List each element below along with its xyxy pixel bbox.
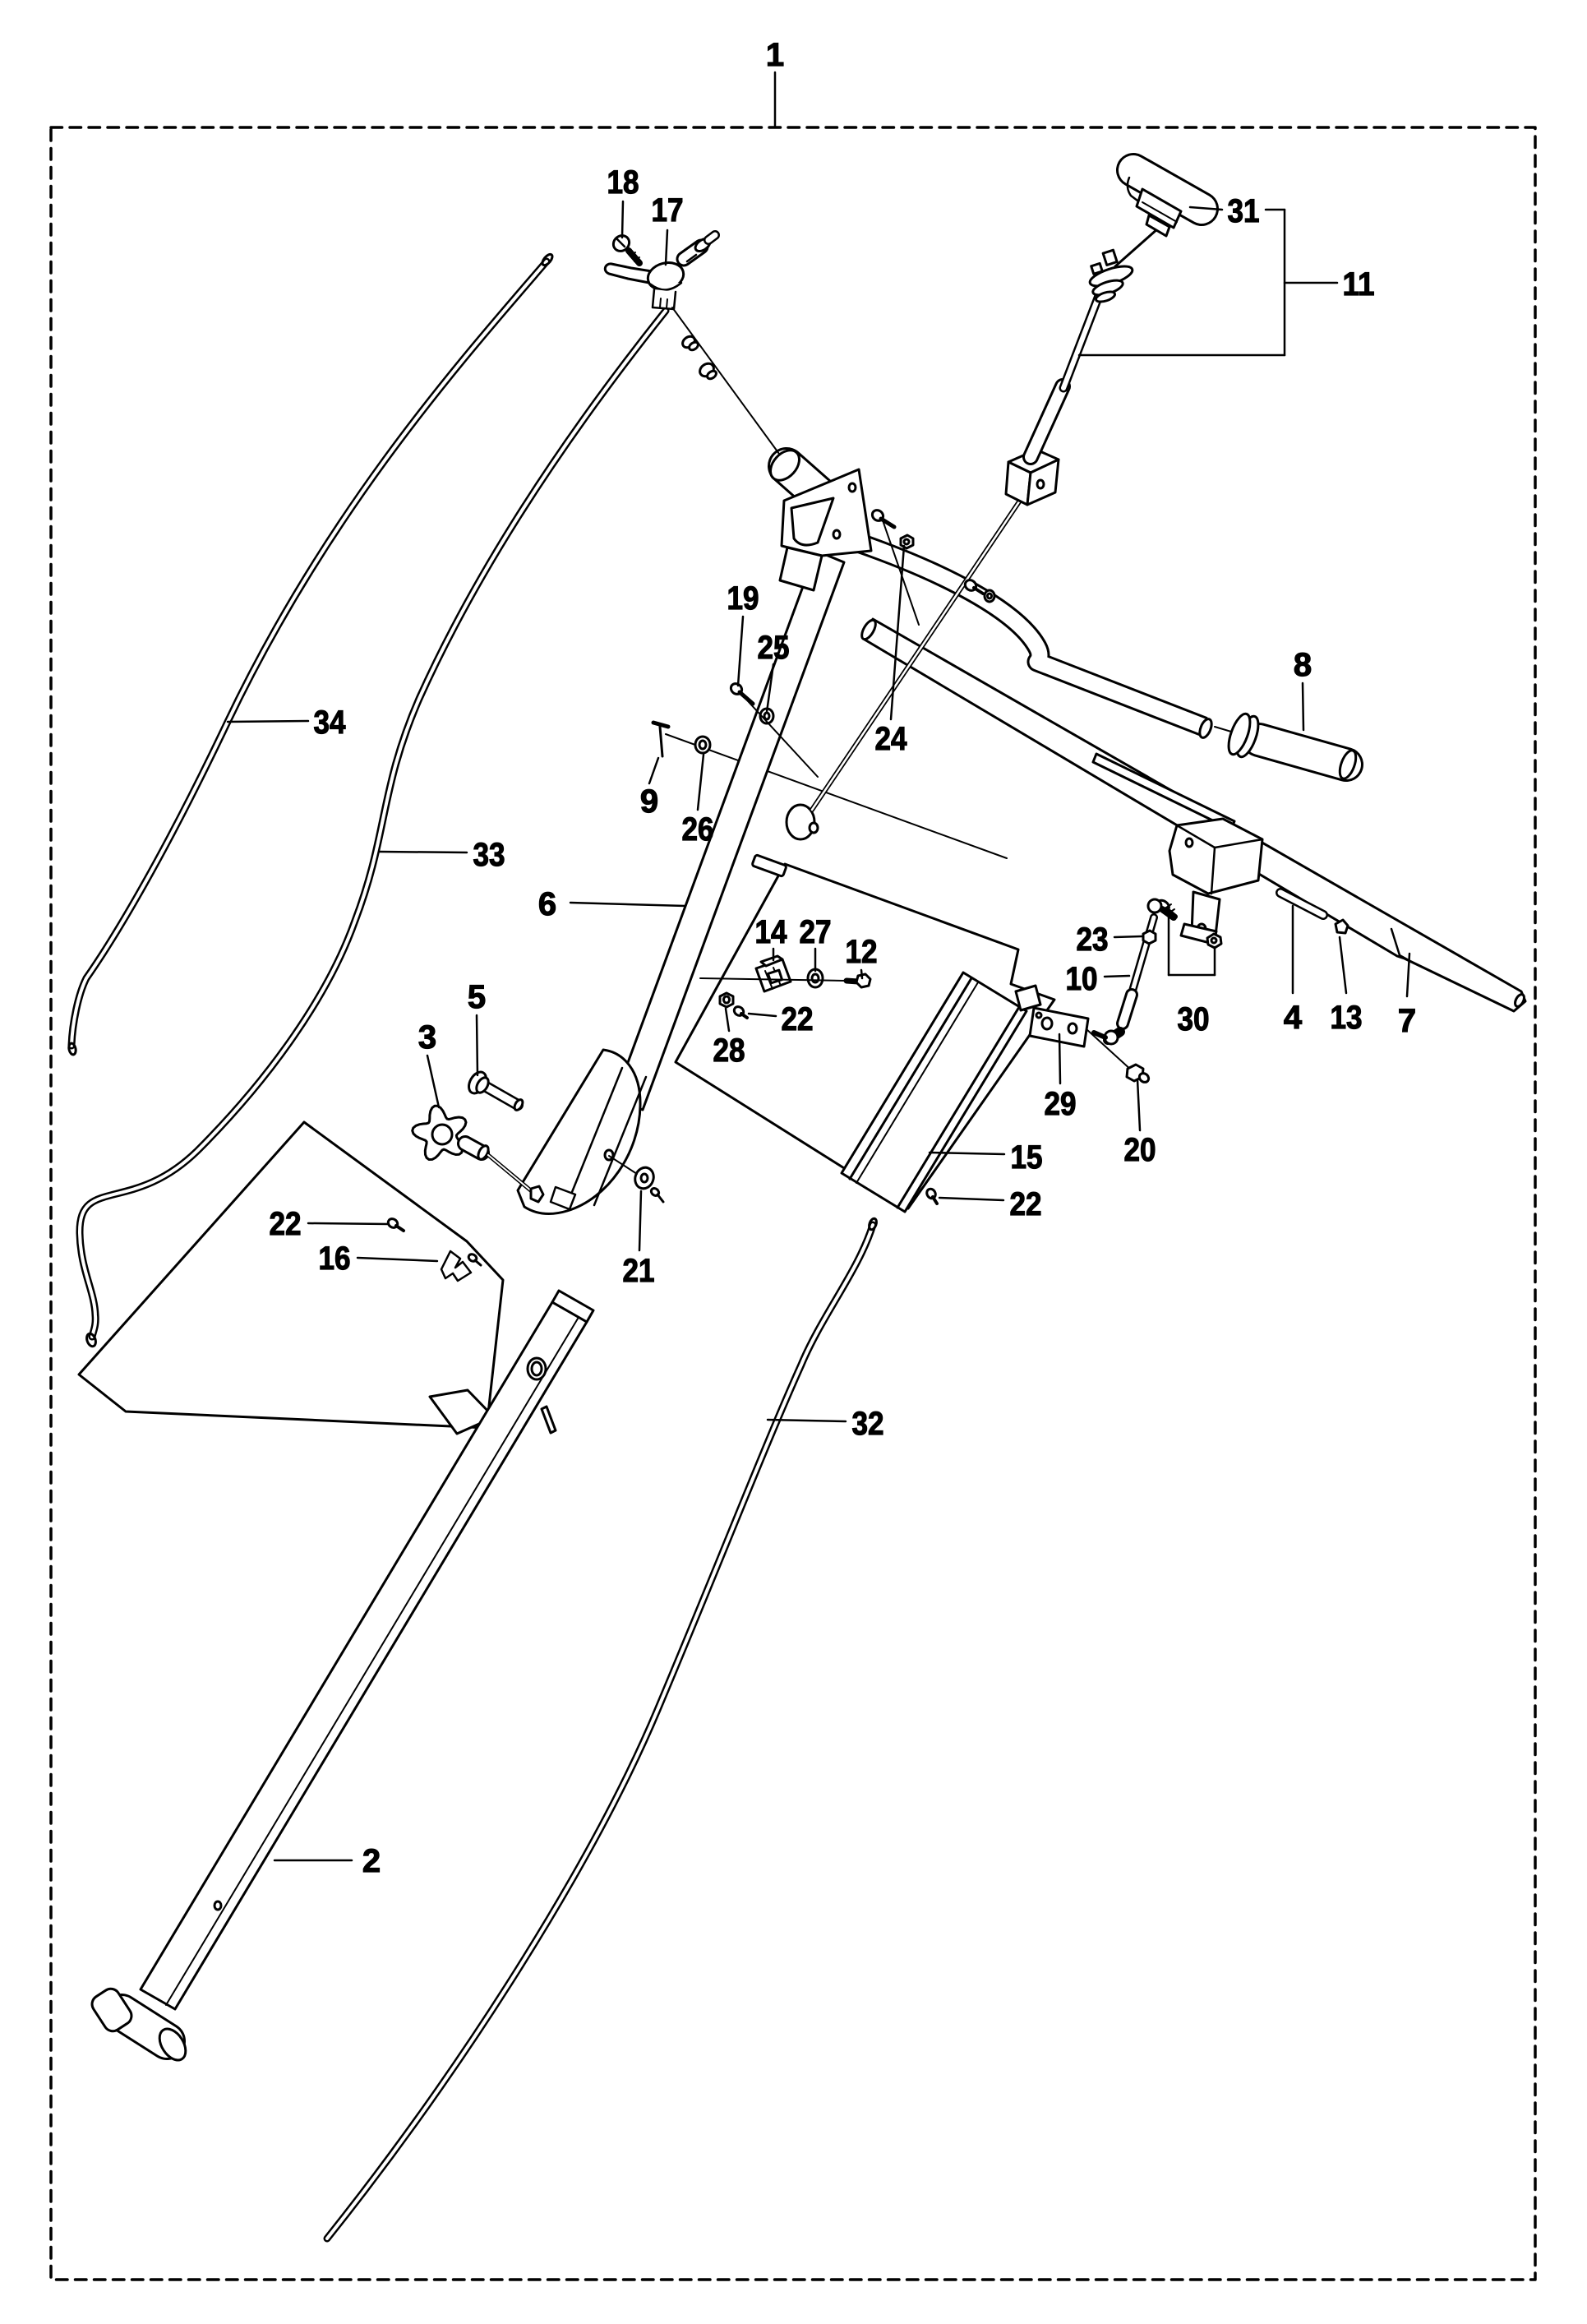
svg-text:19: 19 [727,580,759,617]
svg-text:29: 29 [1045,1086,1077,1122]
svg-text:25: 25 [758,630,790,666]
svg-text:22: 22 [1010,1186,1042,1222]
svg-text:22: 22 [782,1001,814,1037]
svg-text:10: 10 [1066,961,1098,997]
svg-text:9: 9 [640,783,658,820]
svg-text:21: 21 [623,1253,655,1289]
svg-text:12: 12 [846,934,878,970]
svg-text:16: 16 [319,1241,351,1277]
svg-text:28: 28 [713,1033,745,1069]
svg-text:6: 6 [538,886,556,922]
svg-text:26: 26 [682,811,714,848]
svg-text:33: 33 [473,837,505,873]
svg-text:13: 13 [1331,1000,1363,1036]
svg-text:4: 4 [1284,1000,1303,1036]
svg-text:1: 1 [766,37,784,73]
svg-text:11: 11 [1343,266,1375,303]
svg-text:14: 14 [755,914,788,950]
svg-text:30: 30 [1178,1001,1210,1037]
svg-text:32: 32 [852,1406,884,1442]
svg-text:7: 7 [1398,1003,1416,1039]
svg-text:24: 24 [875,721,908,757]
svg-text:27: 27 [800,914,832,950]
svg-text:31: 31 [1228,193,1260,229]
svg-text:20: 20 [1124,1132,1156,1168]
svg-text:22: 22 [270,1206,302,1242]
svg-text:17: 17 [652,192,684,229]
svg-text:2: 2 [362,1843,381,1879]
svg-text:15: 15 [1011,1139,1043,1176]
svg-text:8: 8 [1294,647,1312,683]
svg-text:3: 3 [418,1019,436,1056]
svg-text:5: 5 [468,979,486,1015]
svg-text:23: 23 [1077,922,1109,958]
svg-text:34: 34 [314,705,347,741]
svg-text:18: 18 [607,164,639,201]
